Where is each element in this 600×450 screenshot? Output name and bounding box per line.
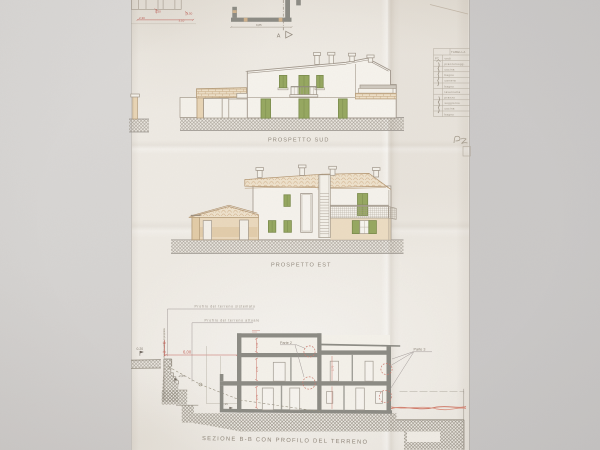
svg-text:2,70: 2,70 bbox=[255, 366, 259, 372]
svg-text:6,00: 6,00 bbox=[183, 350, 192, 355]
svg-text:soggiorno: soggiorno bbox=[445, 101, 460, 105]
svg-text:pranzo/sogg.: pranzo/sogg. bbox=[445, 62, 465, 66]
svg-text:0.20: 0.20 bbox=[137, 347, 144, 351]
svg-text:cucina: cucina bbox=[445, 68, 455, 72]
svg-text:Parte 3: Parte 3 bbox=[414, 348, 426, 352]
svg-text:bagno: bagno bbox=[445, 73, 455, 77]
svg-text:TABELLA: TABELLA bbox=[451, 50, 466, 54]
svg-text:SEZIONE B-B CON PROFILO DEL TE: SEZIONE B-B CON PROFILO DEL TERRENO bbox=[202, 436, 368, 446]
svg-text:-2,65: -2,65 bbox=[178, 374, 185, 378]
svg-text:3,10: 3,10 bbox=[179, 19, 185, 23]
svg-text:2,70: 2,70 bbox=[331, 365, 335, 371]
svg-text:A: A bbox=[277, 34, 281, 40]
svg-text:Profilo del terreno attuale: Profilo del terreno attuale bbox=[205, 318, 260, 322]
svg-text:1,10: 1,10 bbox=[255, 342, 259, 348]
svg-text:9,85: 9,85 bbox=[256, 23, 262, 27]
svg-text:Profilo del terreno sistema: Profilo del terreno sistemato bbox=[195, 305, 256, 309]
svg-text:Parte 2: Parte 2 bbox=[280, 341, 292, 345]
svg-text:tavernetta: tavernetta bbox=[445, 90, 461, 94]
svg-text:cucina: cucina bbox=[445, 107, 455, 111]
svg-text:1,50: 1,50 bbox=[187, 12, 193, 16]
svg-text:PROSPETTO SUD: PROSPETTO SUD bbox=[268, 138, 329, 144]
svg-text:PROSPETTO EST: PROSPETTO EST bbox=[271, 263, 331, 269]
svg-text:1,50: 1,50 bbox=[155, 9, 161, 13]
svg-text:bagno: bagno bbox=[445, 112, 455, 116]
svg-text:pranzo: pranzo bbox=[445, 96, 456, 100]
svg-text:2,30: 2,30 bbox=[139, 16, 145, 20]
svg-text:vedi: vedi bbox=[445, 56, 452, 60]
svg-text:2,70: 2,70 bbox=[255, 394, 259, 400]
svg-text:bagno: bagno bbox=[445, 84, 455, 88]
svg-text:camera: camera bbox=[445, 79, 457, 83]
